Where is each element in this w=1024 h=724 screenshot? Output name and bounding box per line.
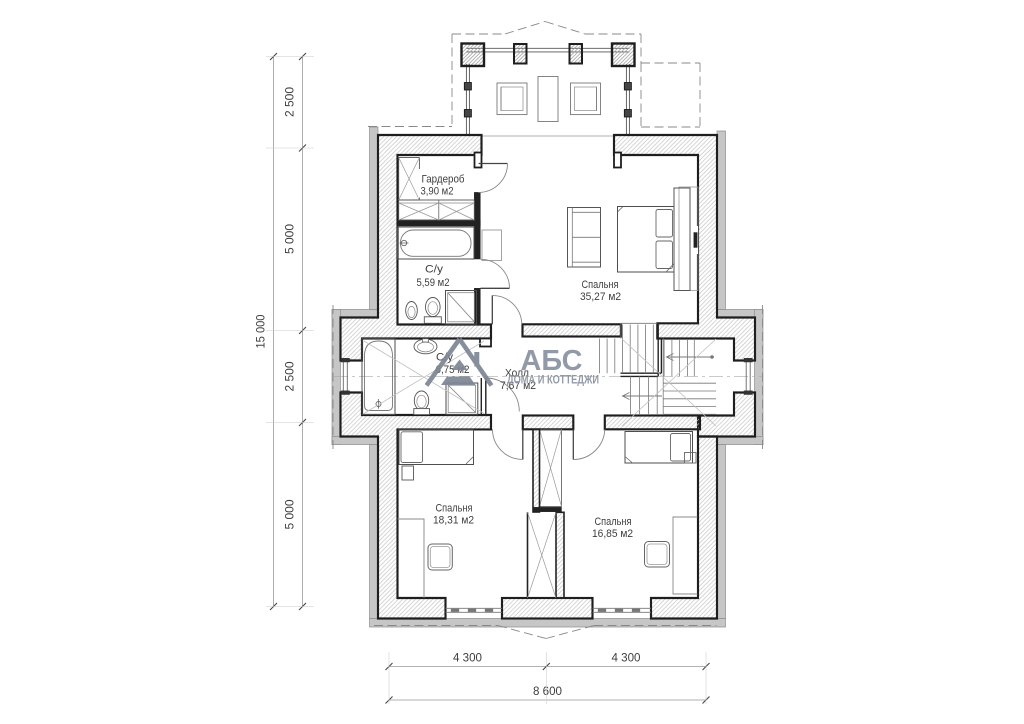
svg-text:Гардероб: Гардероб [422, 174, 465, 186]
svg-text:2 500: 2 500 [285, 362, 297, 392]
svg-text:3,90 м2: 3,90 м2 [421, 186, 454, 198]
svg-text:2 500: 2 500 [285, 87, 297, 117]
svg-text:15 000: 15 000 [256, 315, 268, 349]
svg-text:Спальня: Спальня [436, 503, 473, 515]
svg-text:ДОМА И КОТТЕДЖИ: ДОМА И КОТТЕДЖИ [507, 373, 599, 387]
svg-text:4 300: 4 300 [453, 653, 482, 665]
svg-text:С/у: С/у [425, 264, 444, 276]
svg-text:18,31 м2: 18,31 м2 [433, 515, 474, 527]
svg-text:35,27 м2: 35,27 м2 [580, 291, 621, 303]
svg-text:16,85 м2: 16,85 м2 [592, 528, 633, 540]
svg-text:4 300: 4 300 [612, 653, 641, 665]
svg-text:Спальня: Спальня [595, 516, 632, 528]
svg-text:8 600: 8 600 [533, 686, 562, 698]
svg-text:Спальня: Спальня [582, 279, 619, 291]
svg-text:5 000: 5 000 [285, 224, 297, 254]
svg-text:5,59 м2: 5,59 м2 [417, 277, 450, 289]
svg-text:5 000: 5 000 [285, 500, 297, 530]
